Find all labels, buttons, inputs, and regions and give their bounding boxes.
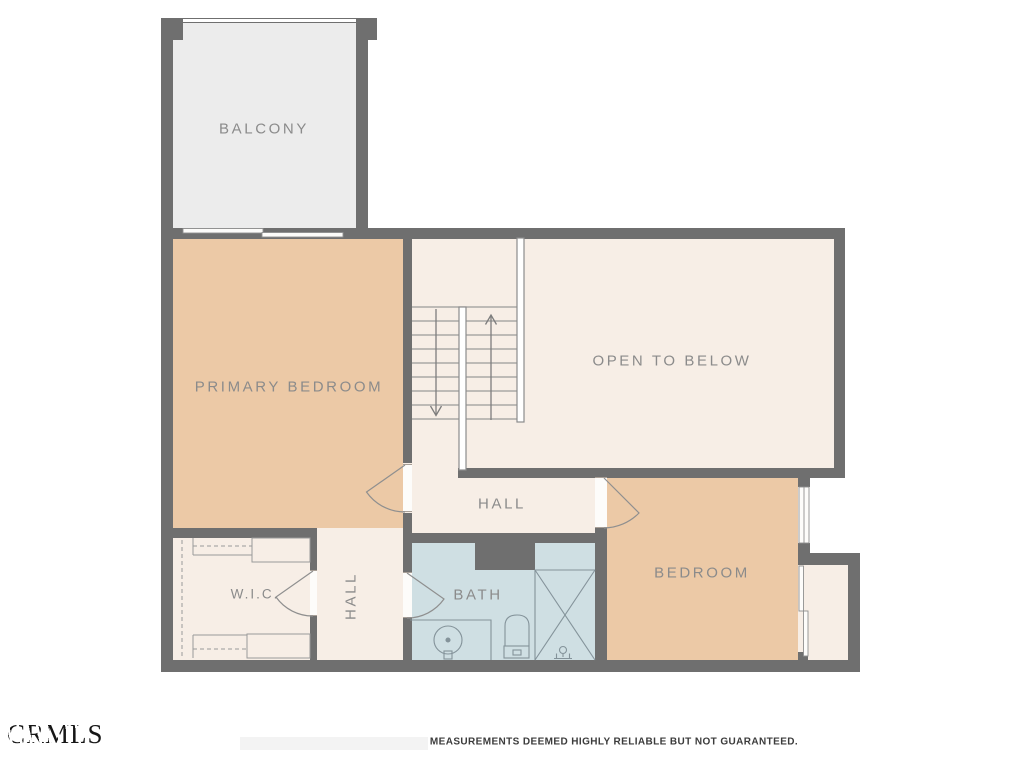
bath-chase [475,533,535,570]
floor-plan: BALCONY PRIMARY BEDROOM OPEN TO BELOW HA… [0,0,1024,768]
crmls-stencil-stripes [5,717,87,751]
wall [595,528,607,660]
window-bedroom [799,487,809,543]
wall [310,538,317,570]
disclaimer-text: MEASUREMENTS DEEMED HIGHLY RELIABLE BUT … [430,737,798,748]
wall [161,18,183,40]
wall [310,616,317,660]
wall [161,228,173,672]
room-label-bedroom: BEDROOM [654,565,750,582]
wall [834,228,845,478]
room-label-hall: HALL [478,496,526,513]
wall [161,18,173,228]
room-hall-vertical [317,528,403,660]
wall [798,652,808,660]
wall [798,468,810,487]
room-label-primary-bedroom: PRIMARY BEDROOM [195,379,383,396]
wall [403,618,412,660]
footer-strip [240,737,428,750]
room-bedroom-closet [798,563,848,660]
room-label-balcony: BALCONY [219,121,309,138]
wall [848,553,860,660]
room-label-wic: W.I.C. [231,587,280,602]
doorway-primary-bedroom [403,464,412,512]
doorway-bedroom [595,477,607,528]
wall [161,660,860,672]
room-label-hall-vertical: HALL [343,572,360,620]
doorway-bath [403,572,412,618]
wall [458,468,845,478]
wall [356,18,368,239]
wall [161,228,845,239]
room-label-bath: BATH [453,587,502,604]
doorway-wic [310,570,317,616]
balcony-railing [183,18,356,23]
room-label-open-to-below: OPEN TO BELOW [592,353,751,370]
wall [403,228,412,463]
crmls-watermark: CRMLS [7,719,85,749]
wall [356,18,377,40]
wall [161,528,317,538]
